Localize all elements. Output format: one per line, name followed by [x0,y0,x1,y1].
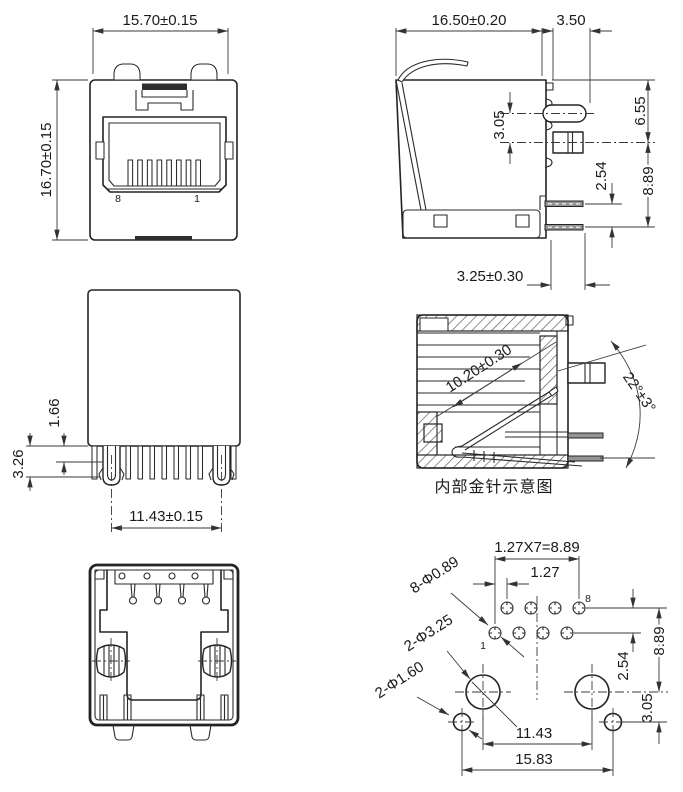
technical-drawing-sheet: 15.70±0.15 16.70±0.15 8 1 [0,0,683,792]
front-height-dim: 16.70±0.15 [38,123,55,198]
side-view: 16.50±0.20 3.50 3.05 6.55 [396,12,657,290]
bottom-left-tab [113,725,134,740]
bottom-view [90,565,238,740]
side-top-to-post-dim: 6.55 [632,96,649,125]
footprint-row-gap-dim: 2.54 [615,651,632,680]
footprint-pitch-dim: 1.27 [530,564,559,581]
front-pin1-label: 1 [194,193,200,205]
front-latch-slot [142,84,187,91]
front-width-dim: 15.70±0.15 [123,12,198,29]
bottom-right-barrel [198,638,236,684]
rear-barb-dim: 1.66 [46,398,63,427]
bottom-posts [100,695,228,720]
section-caption: 内部金针示意图 [434,477,553,496]
side-contact-drop-dim: 3.05 [491,110,508,139]
side-pin-pitch-dim: 2.54 [593,161,610,190]
front-view: 15.70±0.15 16.70±0.15 8 1 [38,12,237,240]
side-pin-offset-dim: 3.25±0.30 [457,268,524,285]
side-depth-dim: 16.50±0.20 [432,12,507,29]
front-pin8-label: 8 [115,193,121,205]
rear-view: 1.66 3.26 11.43±0.15 [10,290,240,535]
footprint-post-holes-callout: 2-Φ3.25 [401,611,456,655]
footprint-post-span-dim: 11.43 [516,725,552,742]
footprint-peg-span-dim: 15.83 [515,751,553,768]
footprint-pin-holes-callout: 8-Φ0.89 [407,553,462,597]
rear-contact-tails [126,446,203,479]
rear-span-dim: 11.43±0.15 [129,508,203,525]
side-post-to-pin-dim: 8.89 [640,166,657,195]
bottom-right-tab [190,725,211,740]
footprint-total-dim: 1.27X7=8.89 [494,539,580,556]
bottom-cavity-outline [100,570,228,700]
section-gold-contact [452,387,582,466]
bottom-contacts [119,573,210,604]
rear-peg-dim: 3.26 [10,449,27,478]
side-tail-dim: 3.50 [556,12,585,29]
side-body-outline [396,80,546,238]
side-latch-spring [398,59,468,82]
section-contact-angle-dim: 22°±3° [619,369,659,416]
front-contact-slots [128,160,201,186]
footprint-peg-holes-callout: 2-Φ1.60 [372,658,427,702]
front-housing-outline [90,80,237,240]
drawing-canvas: 15.70±0.15 16.70±0.15 8 1 [0,0,683,792]
footprint-view: 8 1 1.27X7=8.89 1.27 8-Φ0.89 2-Φ3.25 2-Φ… [372,539,668,776]
front-socket-opening [103,117,226,192]
footprint-pin1-label: 1 [480,640,486,652]
footprint-post-to-peg-dim: 3.05 [639,693,656,722]
footprint-row-to-post-dim: 8.89 [651,626,668,655]
bottom-left-barrel [92,638,130,684]
section-view: 10.20±0.30 22°±3° 内部金针示意图 [417,315,659,496]
rear-body-outline [88,290,240,446]
footprint-pin8-label: 8 [585,593,591,605]
